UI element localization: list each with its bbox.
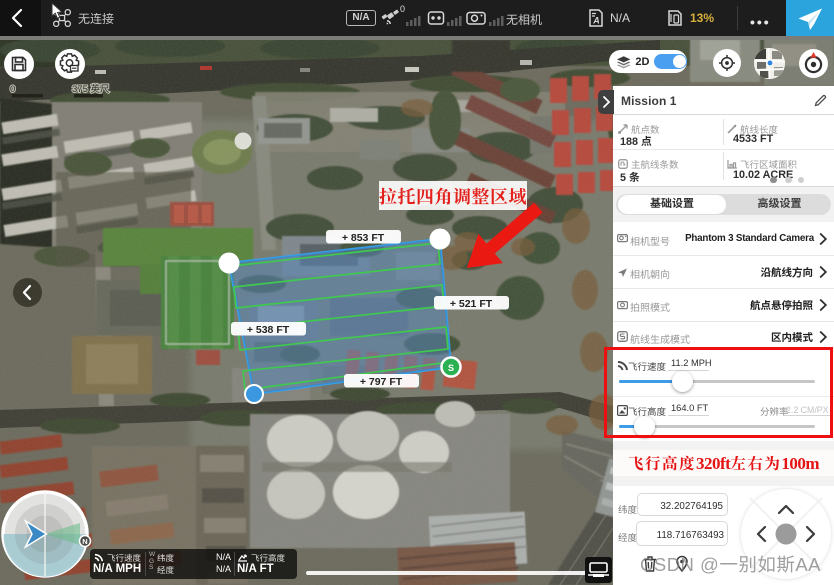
svg-text:+ 853 FT: + 853 FT bbox=[342, 232, 385, 244]
svg-text:+ 538 FT: + 538 FT bbox=[247, 324, 290, 336]
svg-text:375 英尺: 375 英尺 bbox=[72, 84, 110, 95]
svg-text:N: N bbox=[82, 537, 87, 546]
svg-text:+ 521 FT: + 521 FT bbox=[450, 298, 493, 310]
svg-text:A: A bbox=[592, 16, 600, 26]
svg-text:S: S bbox=[448, 363, 454, 373]
svg-text:0: 0 bbox=[10, 84, 15, 95]
svg-text:拉托四角调整区域: 拉托四角调整区域 bbox=[379, 183, 527, 209]
svg-text:+ 797 FT: + 797 FT bbox=[360, 376, 403, 388]
